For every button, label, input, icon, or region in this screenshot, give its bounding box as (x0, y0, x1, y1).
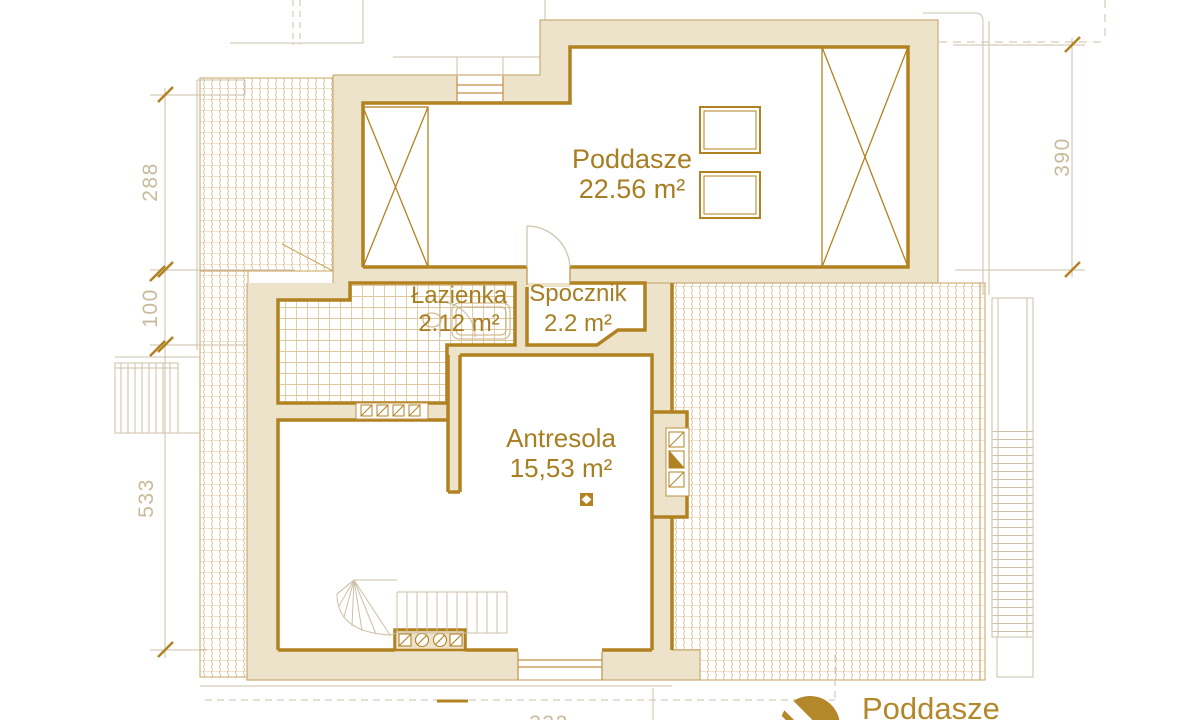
dim-bottom-332: 332 (529, 712, 569, 720)
knee-wall-left-x (363, 107, 428, 267)
floor-plan-drawing: 288 100 533 390 332 Poddasze 22.56 m² Ła… (0, 0, 1200, 720)
dim-left-533: 533 (135, 478, 158, 518)
winder-stairs (337, 580, 507, 635)
glass-block-niche (356, 403, 428, 419)
dim-right-390: 390 (1051, 137, 1074, 177)
chimney-flues (666, 428, 689, 496)
room-label-antresola: Antresola (506, 423, 616, 453)
poddasze-door-arc (527, 226, 570, 285)
dim-left-100: 100 (139, 288, 162, 328)
roof-hatch-right (672, 283, 985, 680)
knee-wall-right-x (822, 47, 908, 267)
room-label-spocznik: Spocznik (529, 280, 627, 307)
room-area-antresola: 15,53 m² (510, 453, 613, 483)
dim-left-288: 288 (139, 162, 162, 202)
room-label-poddasze: Poddasze (572, 144, 692, 174)
room-area-lazienka: 2.12 m² (418, 310, 499, 337)
room-label-lazienka: Łazienka (411, 282, 508, 309)
roof-window-2 (700, 172, 760, 218)
roof-window-1 (700, 107, 760, 153)
logo-text: Poddasze (862, 691, 1000, 720)
antresola-marker (580, 493, 593, 506)
logo: Poddasze (778, 691, 1000, 720)
top-window (457, 76, 503, 103)
room-area-poddasze: 22.56 m² (579, 174, 686, 204)
room-area-spocznik: 2.2 m² (544, 310, 612, 337)
bottom-window (518, 652, 602, 680)
floorplan-page: 288 100 533 390 332 Poddasze 22.56 m² Ła… (0, 0, 1200, 720)
